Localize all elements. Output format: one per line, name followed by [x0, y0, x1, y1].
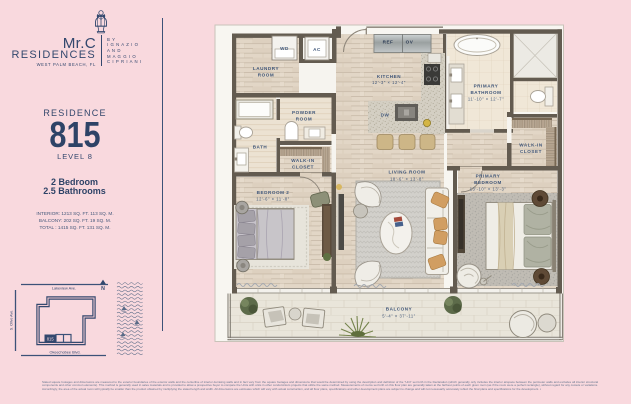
svg-text:BEDROOM 2: BEDROOM 2	[257, 190, 290, 195]
svg-text:13'-10" × 13'-3": 13'-10" × 13'-3"	[470, 187, 507, 192]
svg-text:815: 815	[47, 337, 55, 342]
svg-text:PRIMARY: PRIMARY	[476, 174, 501, 179]
svg-text:BALCONY: BALCONY	[386, 307, 413, 312]
svg-text:BATH: BATH	[253, 145, 268, 150]
svg-text:WD: WD	[280, 46, 289, 51]
svg-text:KITCHEN: KITCHEN	[377, 74, 401, 79]
svg-text:OV: OV	[406, 40, 414, 45]
svg-text:18'-6" × 13'-8": 18'-6" × 13'-8"	[390, 177, 424, 182]
svg-text:LAUNDRY: LAUNDRY	[253, 66, 279, 71]
svg-text:11'-10" × 12'-7": 11'-10" × 12'-7"	[468, 97, 504, 102]
svg-text:LIVING ROOM: LIVING ROOM	[389, 170, 426, 175]
svg-text:N: N	[101, 286, 105, 292]
svg-text:BATHROOM: BATHROOM	[470, 90, 501, 95]
svg-text:BEDROOM: BEDROOM	[474, 180, 502, 185]
svg-text:WALK-IN: WALK-IN	[291, 158, 315, 163]
svg-text:ROOM: ROOM	[296, 117, 313, 122]
svg-text:CLOSET: CLOSET	[520, 149, 542, 154]
svg-text:DW: DW	[381, 113, 390, 118]
svg-text:12'-3" × 12'-4": 12'-3" × 12'-4"	[372, 80, 406, 85]
svg-text:Okeechobee Blvd.: Okeechobee Blvd.	[49, 351, 80, 355]
svg-text:CLOSET: CLOSET	[292, 165, 314, 170]
svg-text:12'-6" × 11'-8": 12'-6" × 11'-8"	[256, 197, 289, 202]
svg-text:PRIMARY: PRIMARY	[474, 84, 499, 89]
svg-text:S. Olive Ave.: S. Olive Ave.	[10, 310, 14, 331]
svg-text:ROOM: ROOM	[258, 73, 275, 78]
svg-text:5'-4" × 37'-11": 5'-4" × 37'-11"	[382, 314, 415, 319]
svg-text:WALK-IN: WALK-IN	[519, 143, 543, 148]
svg-text:AC: AC	[313, 47, 321, 52]
svg-text:REF: REF	[383, 40, 394, 45]
svg-text:POWDER: POWDER	[292, 110, 316, 115]
svg-text:Lakeview Ave.: Lakeview Ave.	[52, 287, 76, 291]
